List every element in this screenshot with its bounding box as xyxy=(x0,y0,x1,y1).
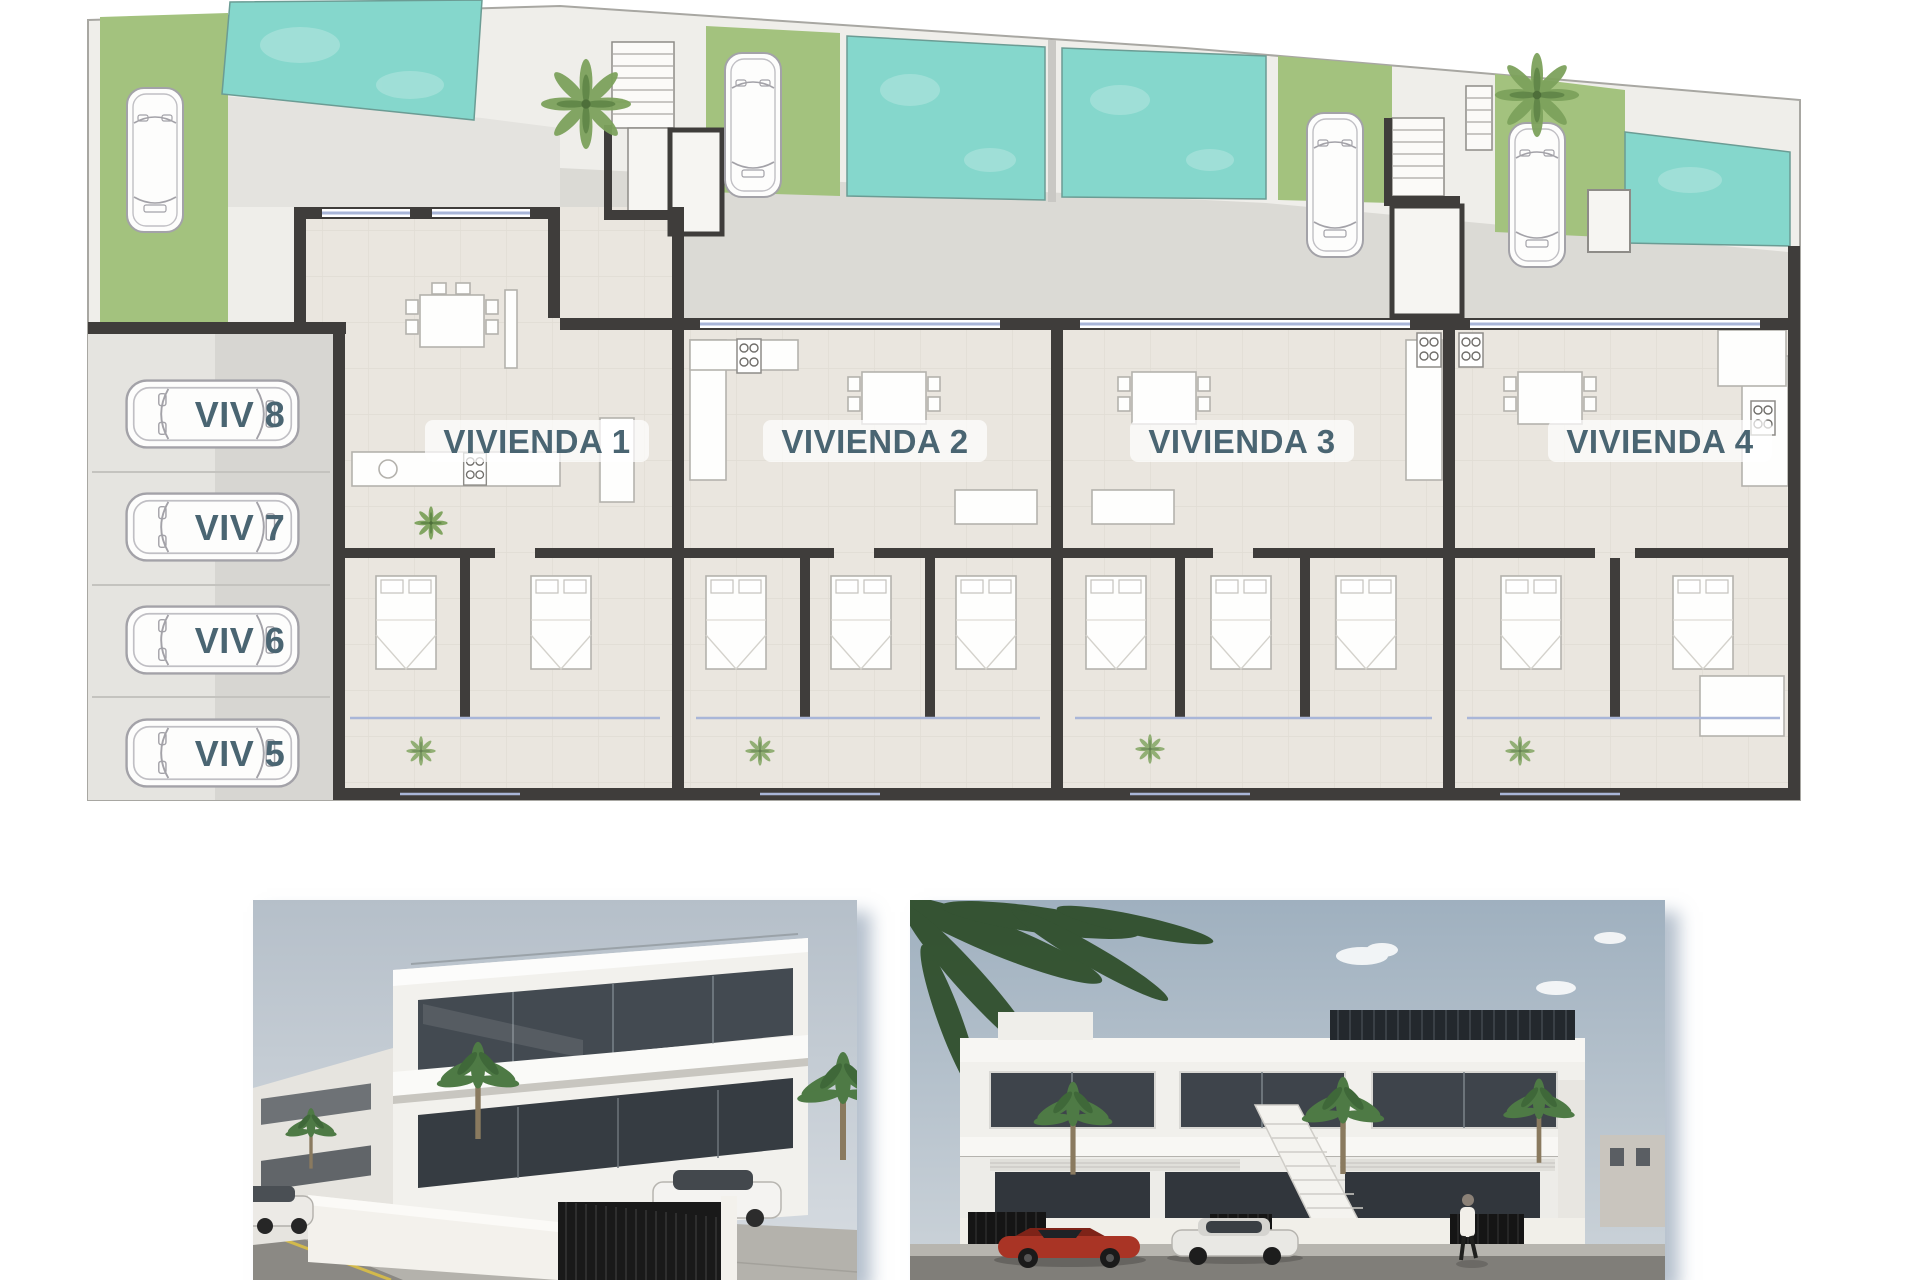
distant-building xyxy=(1600,1135,1665,1227)
viv-5-label: VIV 5 xyxy=(195,733,286,774)
pool-3 xyxy=(1062,48,1266,199)
vivienda-1-label: VIVIENDA 1 xyxy=(443,423,630,460)
viv-7-label: VIV 7 xyxy=(195,507,286,548)
page: VIVIENDA 1 VIVIENDA 2 VIVIENDA 3 VIVIEND… xyxy=(0,0,1920,1280)
vivienda-2-label: VIVIENDA 2 xyxy=(781,423,968,460)
viv-8-label: VIV 8 xyxy=(195,394,286,435)
pool-2 xyxy=(847,36,1045,200)
exterior-render-corner-view xyxy=(253,900,857,1280)
vivienda-3-label: VIVIENDA 3 xyxy=(1148,423,1335,460)
pool-divider-wall xyxy=(1048,40,1056,202)
viv-6-label: VIV 6 xyxy=(195,620,286,661)
black-gate xyxy=(558,1202,723,1280)
vivienda-4-label: VIVIENDA 4 xyxy=(1566,423,1753,460)
roof-pergola xyxy=(1330,1010,1575,1040)
site-floor-plan: VIVIENDA 1 VIVIENDA 2 VIVIENDA 3 VIVIEND… xyxy=(0,0,1920,840)
exterior-render-front-view xyxy=(910,900,1665,1280)
